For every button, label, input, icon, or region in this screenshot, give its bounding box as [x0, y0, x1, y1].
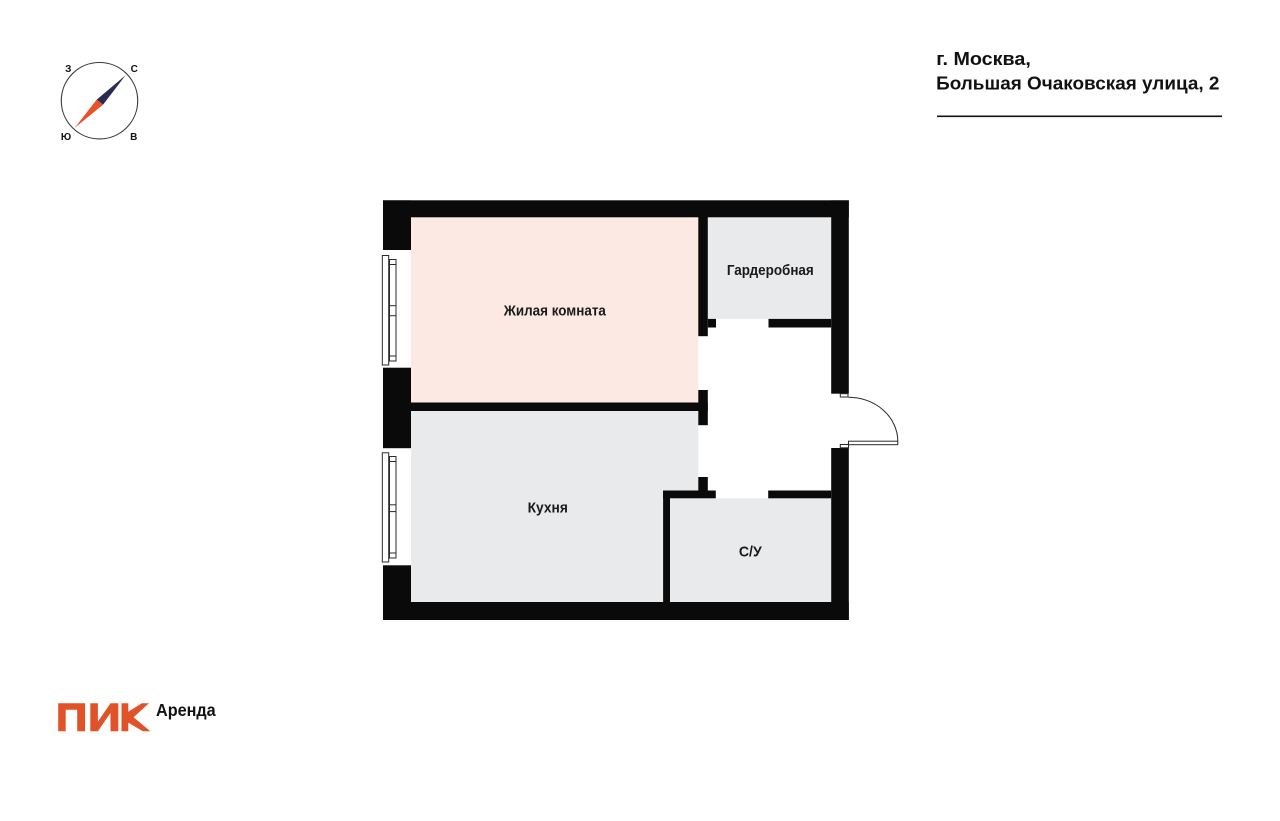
svg-text:г. Москва,: г. Москва, — [936, 48, 1031, 69]
svg-text:Ю: Ю — [61, 132, 71, 143]
svg-text:С/У: С/У — [739, 544, 763, 560]
svg-text:Аренда: Аренда — [156, 700, 216, 720]
svg-text:С: С — [131, 64, 138, 75]
svg-text:Жилая комната: Жилая комната — [503, 304, 607, 320]
svg-text:Большая Очаковская улица, 2: Большая Очаковская улица, 2 — [936, 73, 1219, 94]
svg-text:Гардеробная: Гардеробная — [727, 263, 814, 279]
svg-text:З: З — [65, 64, 71, 75]
svg-text:Кухня: Кухня — [528, 501, 568, 517]
svg-text:В: В — [130, 132, 137, 143]
